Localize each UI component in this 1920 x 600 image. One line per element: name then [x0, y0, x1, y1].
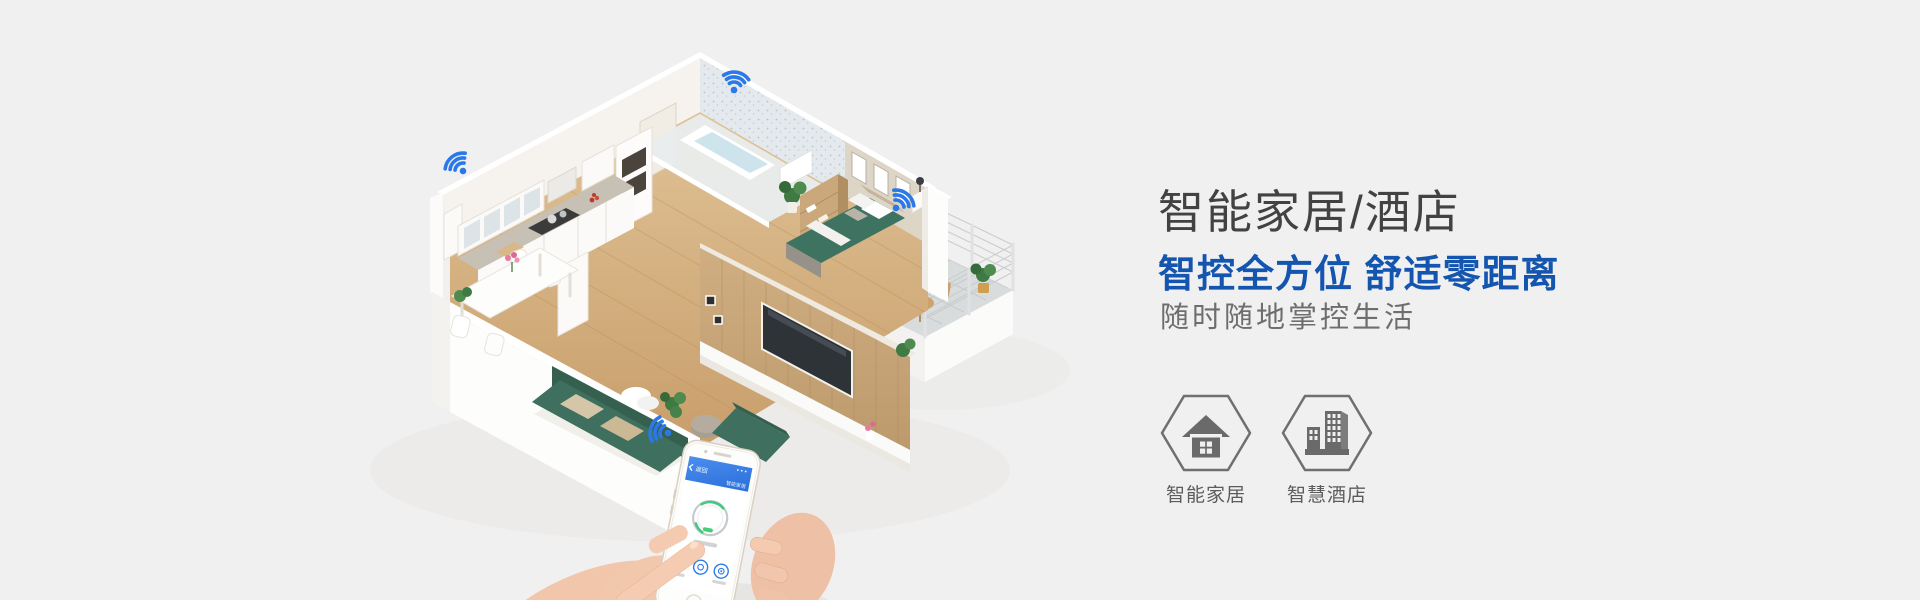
hero-subheadline: 随时随地掌控生活: [1160, 294, 1800, 336]
hero-title: 智能家居/酒店: [1158, 176, 1798, 242]
hotel-icon: [1281, 392, 1373, 474]
hero-headline: 智控全方位 舒适零距离: [1158, 243, 1798, 298]
feature-item-smart-hotel: 智慧酒店: [1267, 392, 1387, 507]
feature-item-smart-home: 智能家居: [1146, 392, 1266, 507]
bedroom-right-wall: [922, 184, 952, 302]
feature-label: 智能家居: [1166, 480, 1246, 507]
feature-label: 智慧酒店: [1287, 480, 1367, 507]
feature-list: 智能家居 智慧酒店: [1146, 392, 1387, 507]
home-icon: [1160, 392, 1252, 474]
hero-banner: 返回 智能家居: [0, 0, 1920, 600]
